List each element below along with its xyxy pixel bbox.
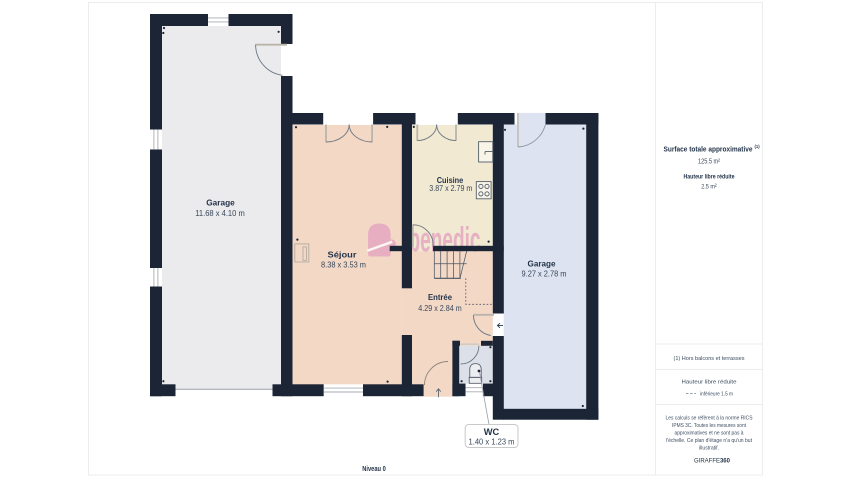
svg-text:illustratif.: illustratif. [699, 446, 719, 452]
svg-text:8.38 x 3.53 m: 8.38 x 3.53 m [321, 259, 366, 269]
svg-text:Séjour: Séjour [328, 250, 358, 260]
svg-text:IPMS 3C. Toutes les mesures so: IPMS 3C. Toutes les mesures sont [672, 423, 746, 429]
svg-text:9.27 x 2.78 m: 9.27 x 2.78 m [522, 269, 567, 279]
svg-text:Garage: Garage [206, 198, 235, 208]
svg-text:GIRAFFE360: GIRAFFE360 [694, 458, 730, 465]
svg-text:approximatives et ne sont pas: approximatives et ne sont pas à [675, 431, 745, 437]
svg-text:1.40 x 1.23 m: 1.40 x 1.23 m [469, 437, 515, 447]
svg-text:Les calculs se réfèrent à la n: Les calculs se réfèrent à la norme RICS [666, 416, 753, 422]
svg-text:l'échelle. Ce plan d'étage n'a: l'échelle. Ce plan d'étage n'a qu'un but [666, 438, 752, 444]
svg-text:Hauteur libre réduite: Hauteur libre réduite [682, 379, 737, 385]
svg-text:125.5 m²: 125.5 m² [698, 159, 721, 166]
svg-text:2.5 m²: 2.5 m² [701, 184, 717, 191]
svg-text:(1) Hors balcons et terrasses: (1) Hors balcons et terrasses [674, 356, 745, 362]
svg-text:Hauteur libre réduite: Hauteur libre réduite [684, 174, 735, 181]
svg-text:inférieure 1.5 m: inférieure 1.5 m [700, 392, 733, 398]
svg-text:3.87 x 2.79 m: 3.87 x 2.79 m [429, 183, 472, 193]
svg-text:Garage: Garage [528, 259, 556, 269]
svg-text:benedic: benedic [409, 221, 481, 260]
svg-text:4.29 x 2.84 m: 4.29 x 2.84 m [418, 303, 462, 313]
svg-text:Niveau 0: Niveau 0 [362, 464, 386, 473]
svg-text:(1): (1) [755, 144, 761, 149]
svg-text:11.68 x 4.10 m: 11.68 x 4.10 m [195, 208, 245, 218]
svg-text:Surface totale approximative: Surface totale approximative [664, 145, 753, 154]
svg-text:WC: WC [484, 427, 500, 437]
svg-text:Entrée: Entrée [428, 292, 452, 302]
